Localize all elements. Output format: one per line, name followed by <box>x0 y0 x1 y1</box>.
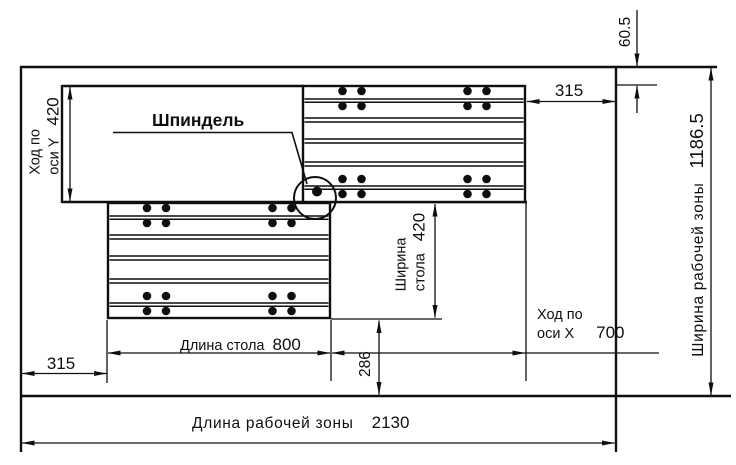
table-length-value: 800 <box>272 336 300 354</box>
zone-length-label-block: Длина рабочей зоны 2130 <box>192 414 409 433</box>
table-width-label-block: Ширина стола 420 <box>393 213 430 291</box>
bottom-offset-value: 286 <box>357 351 375 377</box>
lower-table <box>108 203 330 318</box>
spindle-leader-line <box>113 133 307 185</box>
machine-working-zone-diagram: Шпиндель Ход по оси Y 420 60.5 315 Ширин… <box>0 0 736 465</box>
top-offset-value: 60.5 <box>617 17 635 47</box>
left-gap-value: 315 <box>47 355 75 373</box>
right-gap-value: 315 <box>555 82 583 100</box>
spindle-dot <box>312 187 322 197</box>
upper-table <box>303 86 525 202</box>
upper-table-outline <box>303 86 525 202</box>
y-travel-label-line2: оси Y <box>46 138 64 175</box>
spindle-label: Шпиндель <box>152 111 244 129</box>
zone-length-value: 2130 <box>372 414 410 432</box>
x-travel-value: 700 <box>596 324 624 342</box>
table-width-value: 420 <box>411 213 429 241</box>
table-length-label: Длина стола <box>180 337 264 355</box>
table-width-label-line2: стола <box>412 253 430 291</box>
zone-width-label: Ширина рабочей зоны <box>690 182 708 356</box>
y-travel-label-block: Ход по оси Y 420 <box>27 97 64 175</box>
y-travel-value: 420 <box>45 97 63 125</box>
x-travel-label-line2: оси X <box>537 325 574 343</box>
x-travel-label-block: Ход по оси X 700 <box>537 306 625 343</box>
zone-length-label: Длина рабочей зоны <box>192 415 354 433</box>
table-length-label-block: Длина стола 800 <box>180 336 301 355</box>
table-width-label-line1: Ширина <box>393 238 411 292</box>
zone-width-value: 1186.5 <box>688 113 706 168</box>
drawing-canvas <box>0 0 736 465</box>
y-travel-label-line1: Ход по <box>27 129 45 175</box>
x-travel-label-line1: Ход по <box>537 306 583 324</box>
zone-width-label-block: Ширина рабочей зоны 1186.5 <box>688 113 708 356</box>
